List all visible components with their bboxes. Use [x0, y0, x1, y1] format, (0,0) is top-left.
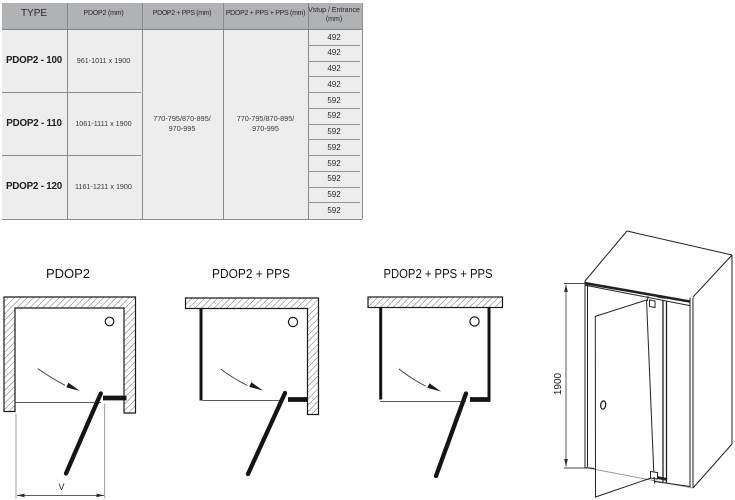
- svg-text:1900: 1900: [553, 372, 564, 395]
- svg-text:PDOP2 + PPS + PPS: PDOP2 + PPS + PPS: [384, 266, 493, 281]
- svg-text:V: V: [58, 482, 64, 492]
- svg-text:PDOP2 + PPS: PDOP2 + PPS: [212, 266, 290, 281]
- svg-text:PDOP2: PDOP2: [46, 266, 90, 281]
